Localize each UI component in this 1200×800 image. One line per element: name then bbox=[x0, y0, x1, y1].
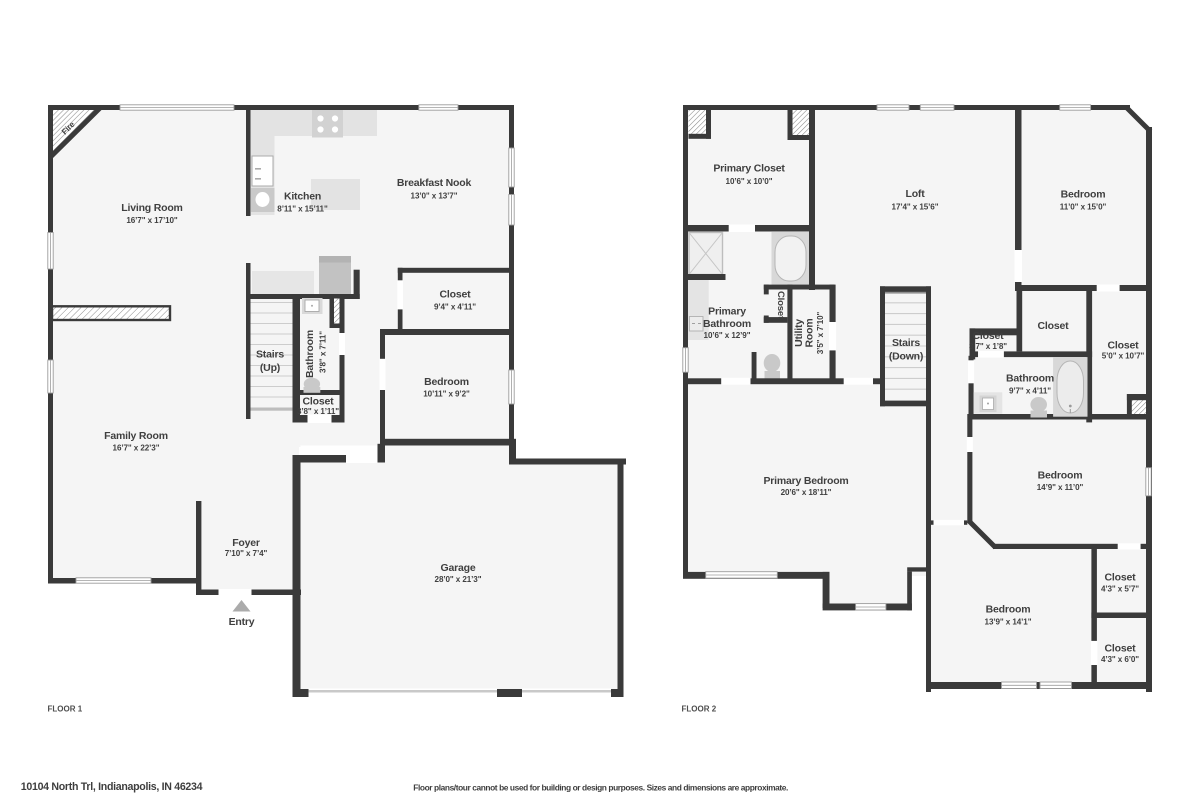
svg-text:Living Room: Living Room bbox=[121, 202, 182, 214]
svg-text:13’0" x 13’7": 13’0" x 13’7" bbox=[411, 191, 458, 200]
svg-text:Garage: Garage bbox=[441, 562, 476, 574]
svg-text:Primary Bedroom: Primary Bedroom bbox=[763, 475, 848, 487]
svg-text:28’0" x 21’3": 28’0" x 21’3" bbox=[435, 575, 482, 584]
svg-text:Closet: Closet bbox=[1108, 340, 1140, 352]
svg-text:Bedroom: Bedroom bbox=[986, 604, 1031, 616]
svg-text:Closet: Closet bbox=[775, 291, 786, 320]
svg-text:Stairs: Stairs bbox=[892, 337, 920, 349]
svg-text:16’7" x 22’3": 16’7" x 22’3" bbox=[113, 443, 160, 452]
svg-text:9’4" x 4’11": 9’4" x 4’11" bbox=[434, 302, 476, 311]
svg-text:3’8" x 7’11": 3’8" x 7’11" bbox=[319, 331, 328, 373]
svg-text:10’6" x 10’0": 10’6" x 10’0" bbox=[726, 177, 773, 186]
svg-text:Closet: Closet bbox=[1038, 320, 1070, 332]
svg-text:20’6" x 18’11": 20’6" x 18’11" bbox=[781, 488, 832, 497]
svg-text:14’9" x 11’0": 14’9" x 11’0" bbox=[1037, 483, 1084, 492]
svg-text:4’3" x 5’7": 4’3" x 5’7" bbox=[1101, 584, 1139, 593]
svg-text:17’4" x 15’6": 17’4" x 15’6" bbox=[892, 202, 939, 211]
svg-text:Bedroom: Bedroom bbox=[1061, 189, 1106, 201]
svg-text:Kitchen: Kitchen bbox=[284, 191, 321, 203]
svg-text:10’11" x 9’2": 10’11" x 9’2" bbox=[423, 389, 470, 398]
svg-text:Closet: Closet bbox=[1105, 643, 1137, 655]
svg-text:FLOOR 2: FLOOR 2 bbox=[682, 705, 717, 714]
svg-text:Bathroom: Bathroom bbox=[1006, 373, 1054, 385]
svg-text:Closet: Closet bbox=[440, 289, 472, 301]
svg-text:Closet: Closet bbox=[973, 330, 1005, 342]
svg-text:13’9" x 14’1": 13’9" x 14’1" bbox=[985, 617, 1032, 626]
svg-text:Family Room: Family Room bbox=[104, 430, 168, 442]
svg-text:(Up): (Up) bbox=[260, 362, 280, 374]
svg-text:Primary: Primary bbox=[708, 306, 746, 318]
svg-text:Closet: Closet bbox=[1105, 572, 1137, 584]
svg-text:Stairs: Stairs bbox=[256, 349, 284, 361]
svg-text:Closet: Closet bbox=[303, 396, 335, 408]
svg-text:Bedroom: Bedroom bbox=[1038, 470, 1083, 482]
svg-text:10’6" x 12’9": 10’6" x 12’9" bbox=[704, 331, 751, 340]
svg-text:Entry: Entry bbox=[229, 616, 255, 628]
svg-text:3’7" x 1’8": 3’7" x 1’8" bbox=[969, 342, 1007, 351]
svg-text:4’3" x 6’0": 4’3" x 6’0" bbox=[1101, 655, 1139, 664]
svg-text:Room: Room bbox=[804, 319, 816, 348]
svg-text:FLOOR 1: FLOOR 1 bbox=[48, 705, 83, 714]
svg-text:Floor plans/tour cannot be use: Floor plans/tour cannot be used for buil… bbox=[413, 783, 788, 793]
svg-text:Breakfast Nook: Breakfast Nook bbox=[397, 177, 472, 189]
svg-text:3’5" x 7’10": 3’5" x 7’10" bbox=[816, 312, 825, 355]
svg-text:10104 North Trl, Indianapolis,: 10104 North Trl, Indianapolis, IN 46234 bbox=[21, 781, 203, 793]
svg-text:5’0" x 10’7": 5’0" x 10’7" bbox=[1102, 351, 1145, 360]
svg-text:11’0" x 15’0": 11’0" x 15’0" bbox=[1060, 202, 1107, 211]
svg-text:Foyer: Foyer bbox=[232, 537, 260, 549]
svg-text:8’11" x 15’11": 8’11" x 15’11" bbox=[277, 204, 328, 213]
svg-text:Loft: Loft bbox=[905, 188, 925, 200]
svg-text:Primary Closet: Primary Closet bbox=[713, 163, 785, 175]
svg-text:3’8" x 1’11": 3’8" x 1’11" bbox=[297, 407, 339, 416]
svg-text:9’7" x 4’11": 9’7" x 4’11" bbox=[1009, 386, 1051, 395]
svg-text:Bedroom: Bedroom bbox=[424, 376, 469, 388]
svg-text:7’10" x 7’4": 7’10" x 7’4" bbox=[225, 549, 268, 558]
svg-text:(Down): (Down) bbox=[889, 351, 923, 363]
svg-text:Bathroom: Bathroom bbox=[703, 318, 751, 330]
svg-text:Bathroom: Bathroom bbox=[304, 330, 316, 378]
svg-text:16’7" x 17’10": 16’7" x 17’10" bbox=[126, 216, 178, 225]
